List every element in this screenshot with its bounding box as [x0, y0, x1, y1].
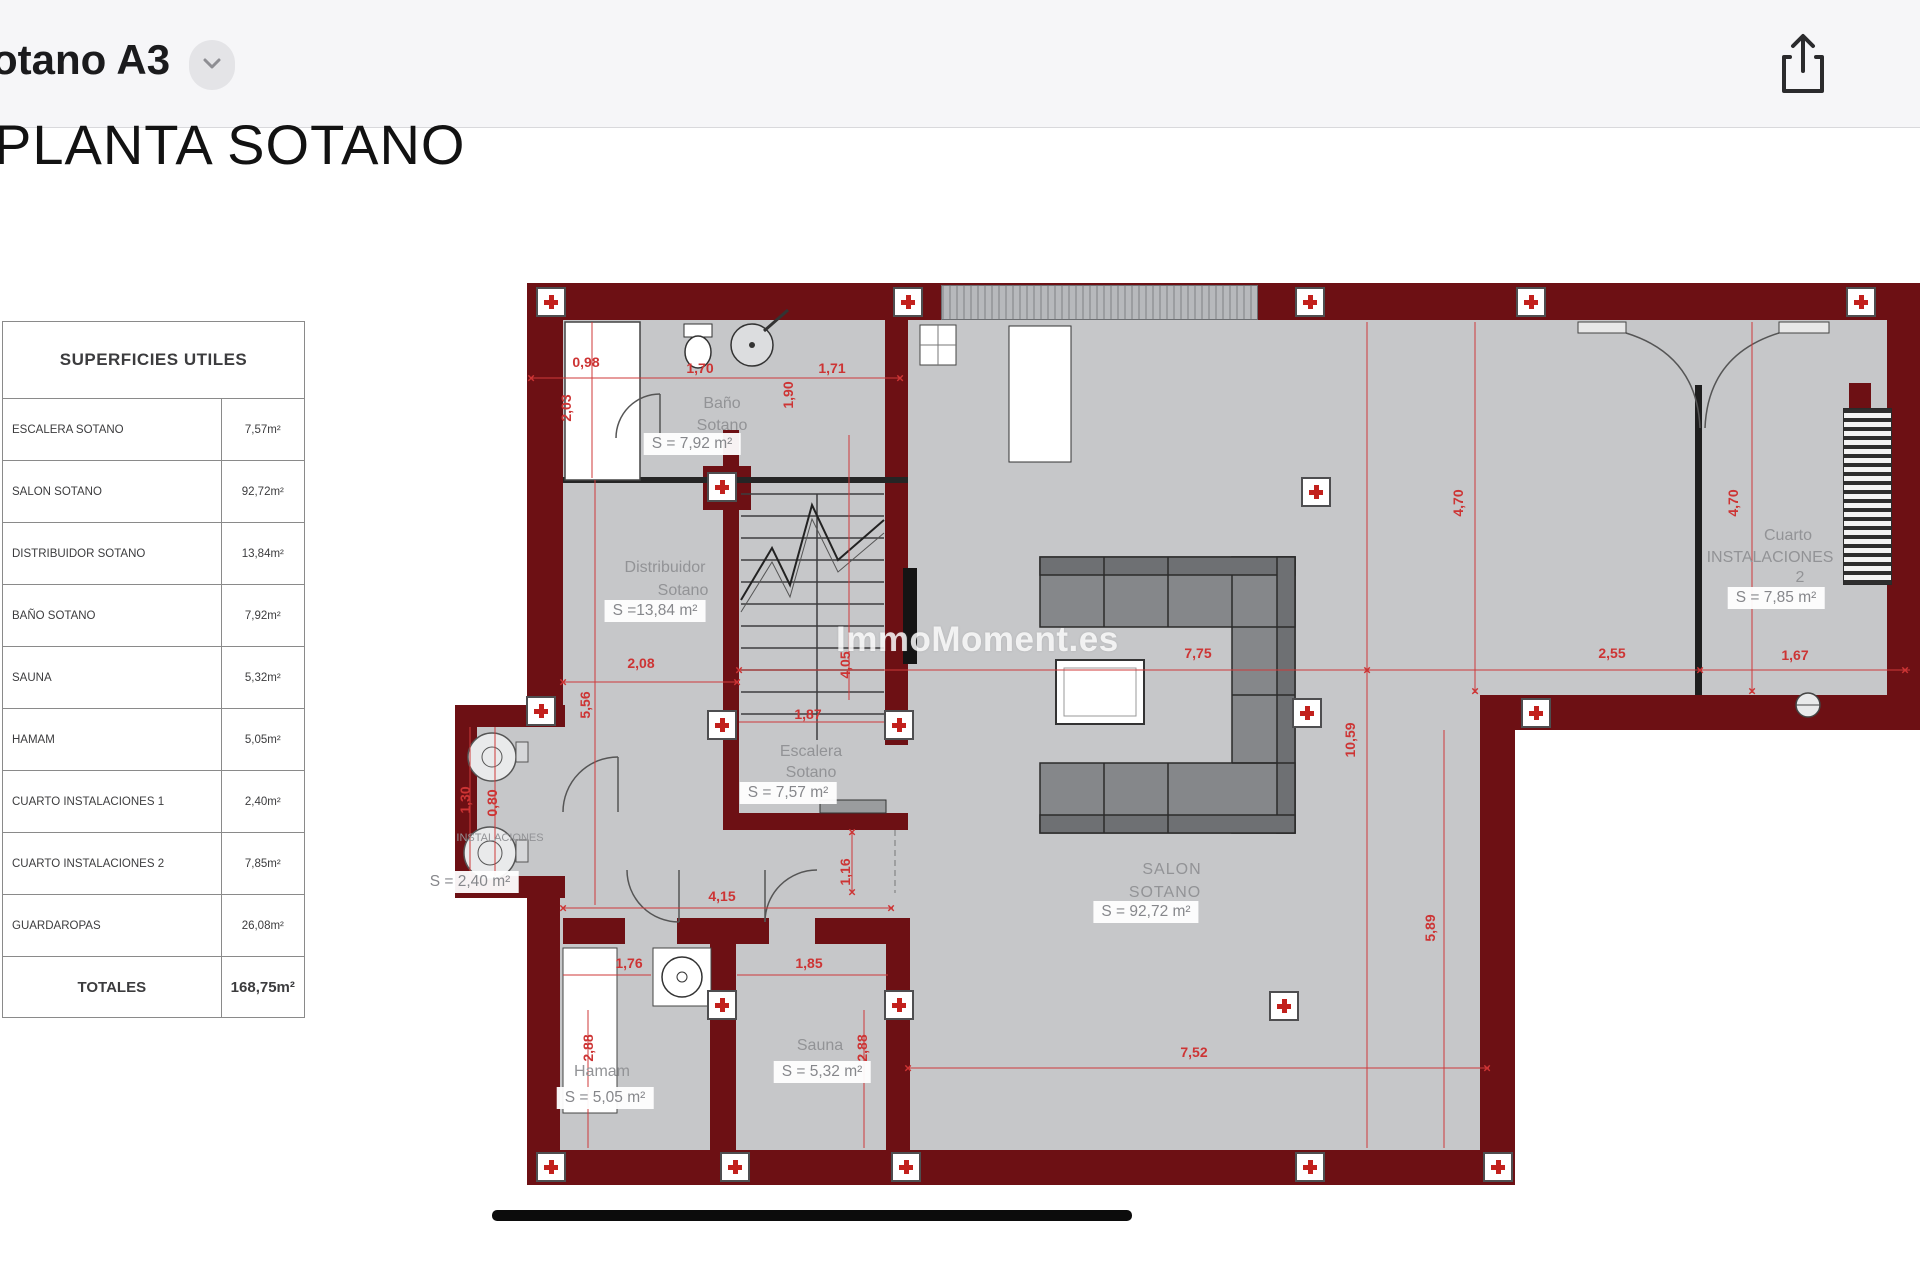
- dim-tick-icon: ×: [1696, 663, 1704, 678]
- room-area-cuarto2: S = 7,85 m²: [1728, 587, 1825, 609]
- room-label-salon-2: SOTANO: [1129, 884, 1201, 902]
- dim-tick-icon: ×: [896, 371, 904, 386]
- dim-label: 5,89: [1422, 914, 1438, 941]
- room-area-hamam: S = 5,05 m²: [557, 1087, 654, 1109]
- dim-tick-icon: ×: [848, 825, 856, 840]
- dim-label: 4,70: [1450, 489, 1466, 516]
- dim-tick-icon: ×: [527, 371, 535, 386]
- dim-label: 2,55: [1598, 645, 1625, 661]
- column-marker-icon: [707, 710, 737, 740]
- room-area-distribuidor: S =13,84 m²: [605, 600, 706, 622]
- dim-tick-icon: ×: [887, 901, 895, 916]
- dim-label: 1,16: [837, 858, 853, 885]
- dim-label: 1,70: [686, 360, 713, 376]
- column-marker-icon: [1483, 1152, 1513, 1182]
- dim-tick-icon: ×: [1363, 663, 1371, 678]
- radiator-unit: [1843, 408, 1892, 585]
- dim-label: 0,98: [572, 354, 599, 370]
- column-marker-icon: [1295, 1152, 1325, 1182]
- dim-label: 1,30: [457, 786, 473, 813]
- column-marker-icon: [1521, 698, 1551, 728]
- column-marker-icon: [884, 710, 914, 740]
- dim-label: 1,90: [780, 381, 796, 408]
- column-marker-icon: [1846, 287, 1876, 317]
- column-marker-icon: [891, 1152, 921, 1182]
- room-label-hamam: Hamam: [574, 1063, 630, 1081]
- column-marker-icon: [1516, 287, 1546, 317]
- dim-tick-icon: ×: [559, 901, 567, 916]
- column-marker-icon: [1301, 477, 1331, 507]
- dim-label: 5,56: [577, 691, 593, 718]
- dim-tick-icon: ×: [735, 663, 743, 678]
- dim-label: 1,67: [1781, 647, 1808, 663]
- dim-label: 0,80: [484, 789, 500, 816]
- dim-label: 1,76: [615, 955, 642, 971]
- room-label-salon-1: SALON: [1142, 861, 1201, 879]
- dim-tick-icon: ×: [1901, 663, 1909, 678]
- column-marker-icon: [526, 696, 556, 726]
- room-label-bano-1: Baño: [703, 395, 740, 413]
- column-marker-icon: [893, 287, 923, 317]
- skylight-hatch: [941, 285, 1258, 320]
- dim-label: 2,03: [558, 394, 574, 421]
- floorplan-canvas[interactable]: 0,98 2,03 1,70 1,90 1,71 2,08 5,56 4,05 …: [0, 0, 1920, 1280]
- room-area-bano: S = 7,92 m²: [644, 433, 741, 455]
- room-label-escalera-1: Escalera: [780, 743, 842, 761]
- dim-label: 2,08: [627, 655, 654, 671]
- room-label-sauna: Sauna: [797, 1037, 843, 1055]
- dim-label: 10,59: [1342, 722, 1358, 757]
- room-label-distribuidor-2: Sotano: [658, 582, 709, 600]
- dim-label: 7,52: [1180, 1044, 1207, 1060]
- column-marker-icon: [536, 1152, 566, 1182]
- room-label-cuarto2-2: INSTALACIONES: [1707, 549, 1834, 567]
- room-label-escalera-2: Sotano: [786, 764, 837, 782]
- dim-tick-icon: ×: [559, 675, 567, 690]
- column-marker-icon: [720, 1152, 750, 1182]
- room-label-instalaciones1: INSTALACIONES: [456, 832, 543, 844]
- column-marker-icon: [1295, 287, 1325, 317]
- dim-label: 4,15: [708, 888, 735, 904]
- dim-label: 2,88: [580, 1034, 596, 1061]
- room-area-sauna: S = 5,32 m²: [774, 1061, 871, 1083]
- dim-label: 1,71: [818, 360, 845, 376]
- dim-tick-icon: ×: [1471, 684, 1479, 699]
- column-marker-icon: [1292, 698, 1322, 728]
- room-label-distribuidor-1: Distribuidor: [625, 559, 706, 577]
- dim-tick-icon: ×: [1483, 1061, 1491, 1076]
- viewer-screen: otano A3 PLANTA SOTANO SUPERFICIES UTILE…: [0, 0, 1920, 1280]
- room-area-escalera: S = 7,57 m²: [740, 782, 837, 804]
- dim-label: 1,85: [795, 955, 822, 971]
- dim-label: 2,88: [854, 1034, 870, 1061]
- dim-label: 4,70: [1725, 489, 1741, 516]
- column-marker-icon: [707, 472, 737, 502]
- column-marker-icon: [1269, 991, 1299, 1021]
- dim-label: 1,87: [794, 706, 821, 722]
- column-marker-icon: [707, 990, 737, 1020]
- dim-label: 7,75: [1184, 645, 1211, 661]
- room-label-cuarto2-1: Cuarto: [1764, 527, 1812, 545]
- sheet-border-bar: [492, 1210, 1132, 1221]
- room-label-cuarto2-3: 2: [1796, 569, 1805, 587]
- dim-tick-icon: ×: [904, 1061, 912, 1076]
- dim-tick-icon: ×: [1748, 684, 1756, 699]
- column-marker-icon: [884, 990, 914, 1020]
- room-area-salon: S = 92,72 m²: [1093, 901, 1198, 923]
- column-marker-icon: [536, 287, 566, 317]
- dim-tick-icon: ×: [848, 885, 856, 900]
- watermark: ImmoMoment.es: [836, 620, 1119, 660]
- room-area-instalaciones1: S = 2,40 m²: [422, 871, 519, 893]
